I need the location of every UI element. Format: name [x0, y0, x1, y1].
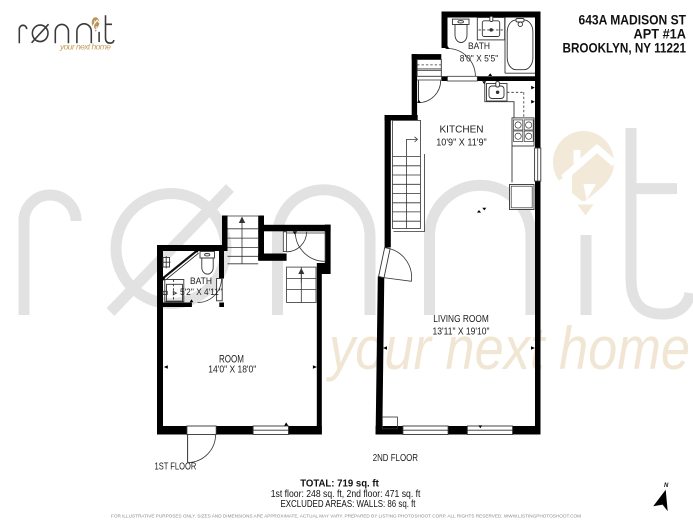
svg-text:APT #1A: APT #1A: [634, 27, 687, 42]
svg-text:BATH: BATH: [190, 276, 212, 286]
svg-text:KITCHEN: KITCHEN: [440, 125, 484, 136]
svg-text:643A MADISON ST: 643A MADISON ST: [579, 13, 687, 28]
svg-text:your next home: your next home: [59, 42, 111, 52]
svg-text:EXCLUDED AREAS: WALLS: 86 sq.: EXCLUDED AREAS: WALLS: 86 sq. ft: [281, 499, 416, 510]
svg-text:13'11" X 19'10": 13'11" X 19'10": [433, 327, 490, 338]
svg-text:BATH: BATH: [468, 41, 490, 52]
svg-text:TOTAL: 719 sq. ft: TOTAL: 719 sq. ft: [300, 479, 379, 490]
svg-text:1ST FLOOR: 1ST FLOOR: [155, 462, 197, 473]
svg-text:8'0" X 5'5": 8'0" X 5'5": [460, 54, 499, 65]
svg-text:N: N: [664, 483, 669, 489]
svg-text:10'9" X 11'9": 10'9" X 11'9": [436, 138, 487, 149]
svg-text:LIVING ROOM: LIVING ROOM: [433, 314, 489, 325]
svg-text:BROOKLYN, NY 11221: BROOKLYN, NY 11221: [563, 41, 687, 56]
svg-text:5'2'' X 4'11'': 5'2'' X 4'11'': [180, 287, 222, 297]
svg-text:14'0" X 18'0": 14'0" X 18'0": [208, 365, 256, 376]
svg-text:2ND FLOOR: 2ND FLOOR: [373, 453, 418, 464]
svg-text:FOR ILLUSTRATIVE PURPOSES ONLY: FOR ILLUSTRATIVE PURPOSES ONLY. SIZES AN…: [111, 514, 581, 519]
